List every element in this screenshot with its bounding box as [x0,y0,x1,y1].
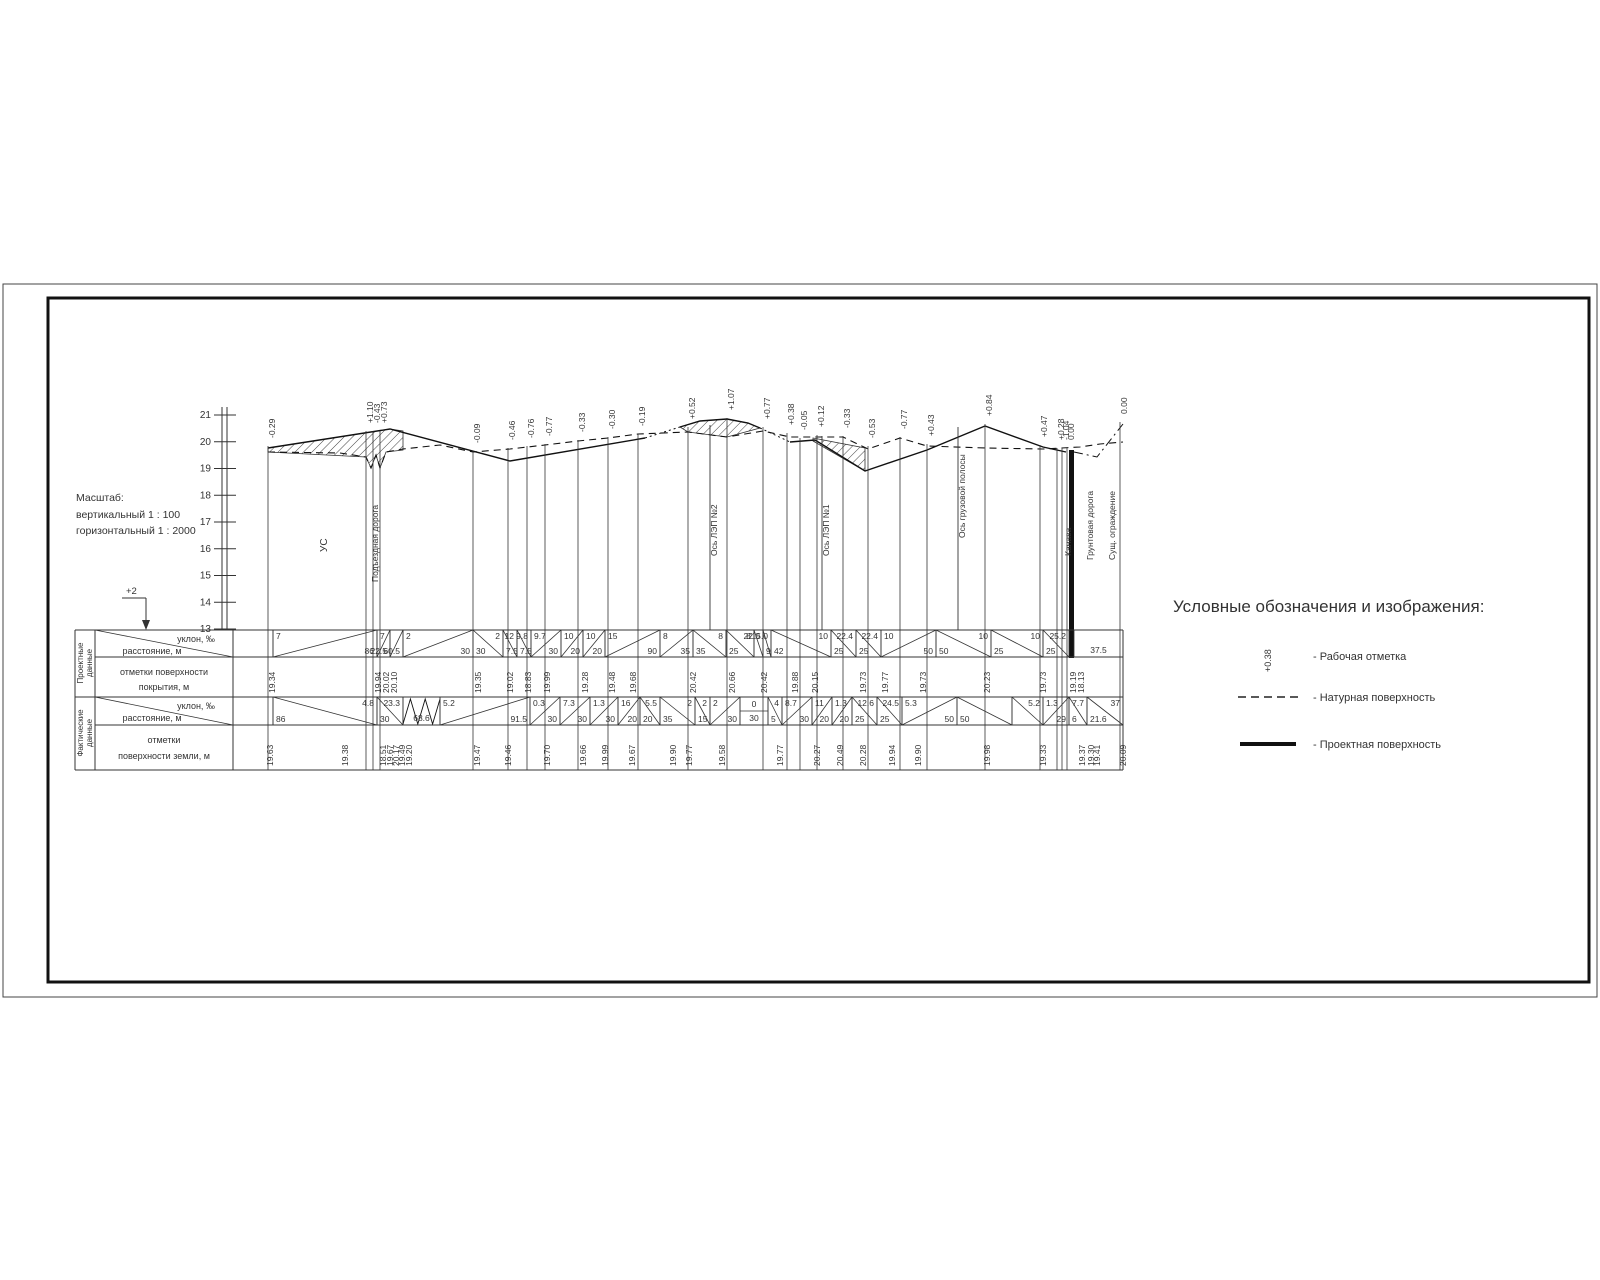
value: 25 [855,714,865,724]
value: 68.6 [413,713,430,723]
working-mark: +0.77 [762,397,772,419]
actual-elevation: 19.98 [982,744,992,766]
design-elevation: 19.73 [918,671,928,693]
value: 6 [1072,714,1077,724]
axis-tick-label: 20 [200,437,212,448]
value: 15 [608,631,618,641]
hatch-area [680,419,760,437]
header-design-elev-2: покрытия, м [139,682,190,692]
design-elevation: 19.02 [505,671,515,693]
actual-elevation-values: 19.6319.3818.5119.6720.1719.4919.2019.47… [265,744,1128,766]
value: 7.5 [520,646,532,656]
value: 30 [548,714,558,724]
value: 30 [800,714,810,724]
working-mark: +0.38 [786,403,796,425]
value: 50 [939,646,949,656]
value: 50 [924,646,934,656]
axis-tick-label: 16 [200,544,212,555]
value: 7 [380,631,385,641]
design-elevation: 20.66 [727,671,737,693]
value: 25 [859,646,869,656]
value: 5 [771,714,776,724]
value: 35 [681,646,691,656]
line [273,630,377,657]
design-elevation-values: 19.3419.9420.0220.1019.3519.0218.8319.99… [267,671,1086,693]
actual-elevation: 20.27 [812,744,822,766]
value: 2 [702,698,707,708]
axis-tick-label: 19 [200,464,212,475]
value: 9.8 [516,631,528,641]
value: 5.2 [443,698,455,708]
value: 35 [696,646,706,656]
design-elevation: 19.73 [1038,671,1048,693]
actual-elevation: 19.99 [600,744,610,766]
actual-elevation: 19.66 [578,744,588,766]
design-elevation: 18.13 [1076,671,1086,693]
value: 5.2 [1028,698,1040,708]
value: 20 [820,714,830,724]
scale-note: Масштаб: вертикальный 1 : 100 горизонтал… [76,492,196,537]
value: 21.6 [1090,714,1107,724]
actual-elevation: 19.47 [472,744,482,766]
value: 2 [495,631,500,641]
value: 1.3 [835,698,847,708]
value: 20 [840,714,850,724]
value: 30 [380,714,390,724]
km-marker-label: +2 [126,586,137,597]
connector-dotted-line [760,428,790,442]
working-mark: -0.05 [799,410,809,430]
legend-item-design-surface: - Проектная поверхность [1313,739,1441,751]
actual-elevation: 19.94 [887,744,897,766]
elevation-scale: 212019181716151413 [200,407,236,635]
axis-tick-label: 15 [200,571,212,582]
value: 2 [406,631,411,641]
value: 30 [549,646,559,656]
value: 15 [698,714,708,724]
value: 30 [476,646,486,656]
arrow-down-icon [142,620,150,630]
value: 25 [1046,646,1056,656]
design-slope-cells: 786722.560.5230230127.59.87.59.730102010… [233,630,1123,657]
value: 10 [586,631,596,641]
actual-elevation: 20.09 [1118,744,1128,766]
feature-label: Ось ЛЭП №2 [709,504,719,556]
scale-note-title: Масштаб: [76,492,124,504]
value: 23.3 [383,698,400,708]
header-actual-elev-1: отметки [148,735,181,745]
actual-elevation: 19.20 [404,744,414,766]
working-mark: 0.00 [1066,423,1076,440]
design-elevation: 19.88 [790,671,800,693]
value: 30 [749,713,759,723]
value: 29 [1057,714,1067,724]
value: 1.3 [1046,698,1058,708]
value: 50 [960,714,970,724]
actual-elevation: 20.28 [858,744,868,766]
design-elevation: 19.48 [607,671,617,693]
profile-plot [268,419,1123,658]
fence-line [1074,424,1123,457]
feature-label: Сущ. ограждение [1107,491,1117,560]
profile-table: Проектные данные Фактические данные укло… [75,630,1128,770]
elevation-scale-ticks: 212019181716151413 [200,410,236,635]
scale-note-vertical: вертикальный 1 : 100 [76,509,180,521]
feature-label: Ось грузовой полосы [957,454,967,538]
value: 7 [276,631,281,641]
value: 22.4 [836,631,853,641]
value: 25 [729,646,739,656]
actual-elevation: 19.77 [684,744,694,766]
value: 2 [687,698,692,708]
value: 20 [628,714,638,724]
feature-label: УС [319,538,330,552]
value: 9 [766,646,771,656]
value: 25 [880,714,890,724]
value: 11 [815,698,824,708]
value: 12.6 [857,698,874,708]
working-mark: -0.76 [526,418,536,438]
value: 30 [578,714,588,724]
value: 16 [621,698,631,708]
value: 5.3 [905,698,917,708]
actual-elevation: 19.46 [503,744,513,766]
working-mark: -0.19 [637,406,647,426]
design-elevation: 20.23 [982,671,992,693]
axis-tick-label: 14 [200,597,212,608]
scale-note-horizontal: горизонтальный 1 : 2000 [76,525,196,537]
design-elevation: 19.68 [628,671,638,693]
value: 7.5 [506,646,518,656]
work-mark-symbol: +0.38 [1263,649,1273,672]
header-design-elev-1: отметки поверхности [120,667,208,677]
working-mark: +0.73 [379,401,389,423]
value: 90 [648,646,658,656]
value: 8 [718,631,723,641]
value: 10 [819,631,829,641]
working-mark: 0.00 [1119,397,1129,414]
value: 10 [884,631,894,641]
working-mark: -0.29 [267,418,277,438]
working-mark: +0.52 [687,397,697,419]
axis-tick-label: 21 [200,410,212,421]
value: 15.0 [751,631,768,641]
band-design-label-2: данные [85,648,94,677]
axis-tick-label: 18 [200,490,212,501]
design-elevation: 20.15 [810,671,820,693]
working-mark: +0.84 [984,394,994,416]
working-mark: -0.33 [577,412,587,432]
km-marker: +2 [122,586,150,630]
value: 0.3 [533,698,545,708]
value: 7.3 [563,698,575,708]
design-elevation: 19.34 [267,671,277,693]
design-elevation: 19.35 [473,671,483,693]
value: 24.5 [882,698,899,708]
value: 1.3 [593,698,605,708]
actual-elevation: 19.77 [775,744,785,766]
band-design-label-1: Проектные [76,642,85,684]
value: 10 [564,631,574,641]
value: 37 [1111,698,1121,708]
value: 22.4 [861,631,878,641]
value: 20 [593,646,603,656]
legend: Условные обозначения и изображения: +0.3… [1173,597,1484,751]
design-elevation: 19.99 [542,671,552,693]
value: 2 [713,698,718,708]
actual-elevation: 20.49 [835,744,845,766]
legend-title: Условные обозначения и изображения: [1173,597,1484,616]
feature-labels: УСПодъездная дорогаОсь ЛЭП №2Ось ЛЭП №1О… [319,425,1117,630]
actual-elevation: 19.41 [1092,744,1102,766]
feature-label: Подъездная дорога [370,505,380,582]
value: 4 [774,698,779,708]
design-elevation: 20.10 [389,671,399,693]
value: 37.5 [1090,645,1107,655]
value: 50 [945,714,955,724]
working-mark: +0.47 [1039,415,1049,437]
legend-item-natural-surface: - Натурная поверхность [1313,692,1436,704]
working-mark: -0.30 [607,409,617,429]
actual-elevation: 19.90 [668,744,678,766]
actual-elevation: 19.70 [542,744,552,766]
header-dist-design: расстояние, м [122,646,181,656]
value: 86 [276,714,286,724]
value: 0 [752,699,757,709]
design-elevation: 20.42 [688,671,698,693]
working-mark: +0.12 [816,405,826,427]
actual-elevation: 19.38 [340,744,350,766]
actual-slope-cells: 4.88623.33068.65.291.50.3307.3301.330162… [233,697,1123,725]
value: 8.7 [785,698,797,708]
actual-elevation: 19.33 [1038,744,1048,766]
value: 25.2 [1049,631,1066,641]
value: 35 [663,714,673,724]
value: 7.7 [1072,698,1084,708]
band-actual-label-1: Фактические [76,709,85,757]
design-elevation: 19.28 [580,671,590,693]
design-elevation: 18.83 [523,671,533,693]
value: 30 [461,646,471,656]
value: 20 [571,646,581,656]
working-mark: +0.43 [926,414,936,436]
design-elevation: 19.73 [858,671,868,693]
feature-label: Ось ЛЭП №1 [821,504,831,556]
value: 30 [606,714,616,724]
value: 60.5 [383,646,400,656]
value: 25 [994,646,1004,656]
value: 42 [774,646,784,656]
band-actual-label-2: данные [85,718,94,747]
drawing-sheet: Масштаб: вертикальный 1 : 100 горизонтал… [0,0,1600,1280]
value: 30 [728,714,738,724]
working-mark: -0.46 [507,420,517,440]
actual-elevation: 19.90 [913,744,923,766]
axis-tick-label: 17 [200,517,212,528]
value: 20 [643,714,653,724]
actual-elevation: 19.63 [265,744,275,766]
actual-elevation: 19.67 [627,744,637,766]
value: 12 [505,631,515,641]
header-actual-elev-2: поверхности земли, м [118,751,210,761]
actual-elevation: 19.58 [717,744,727,766]
working-mark: -0.33 [842,408,852,428]
value: 10 [979,631,989,641]
legend-item-work-mark: - Рабочая отметка [1313,651,1407,663]
value: 8 [663,631,668,641]
working-mark: -0.53 [867,418,877,438]
working-mark: +1.07 [726,388,736,410]
design-elevation: 20.42 [759,671,769,693]
value: 9.7 [534,631,546,641]
header-slope-design: уклон, ‰ [177,634,215,644]
working-mark: -0.77 [899,409,909,429]
value: 91.5 [510,714,527,724]
value: 4.8 [362,698,374,708]
header-dist-actual: расстояние, м [122,713,181,723]
value: 5.5 [645,698,657,708]
value: 10 [1031,631,1041,641]
value: 25 [834,646,844,656]
feature-label: Канава [1063,527,1073,556]
header-slope-actual: уклон, ‰ [177,701,215,711]
working-mark: -0.77 [544,416,554,436]
design-elevation: 19.77 [880,671,890,693]
feature-label: Грунтовая дорога [1085,491,1095,560]
working-mark: -0.09 [472,423,482,443]
